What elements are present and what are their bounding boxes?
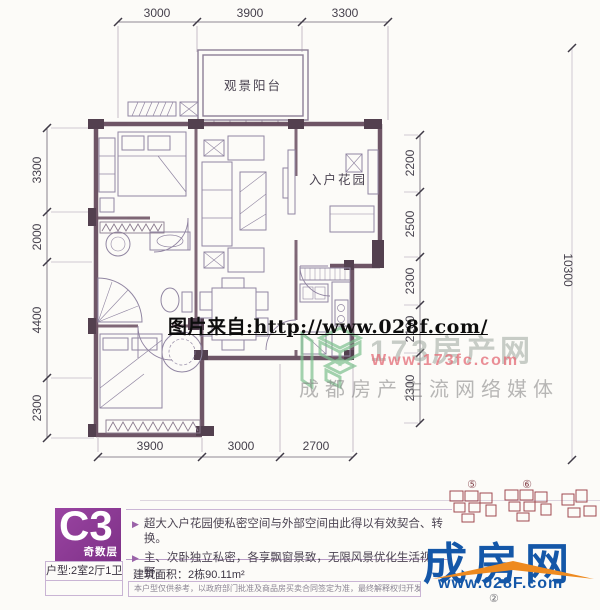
master-bedroom-furniture bbox=[99, 132, 186, 212]
floor-plan-drawing: 3000 3900 3300 3300 2000 4400 2300 2200 … bbox=[0, 0, 600, 500]
dim-right-3: 2300 bbox=[403, 267, 417, 294]
unit-type: 户型:2室2厅1卫 bbox=[45, 561, 123, 581]
entry-garden-label: 入户花园 bbox=[309, 172, 367, 187]
dim-total-height: 10300 bbox=[561, 253, 575, 287]
unit-code-box: C3 奇数层 bbox=[55, 508, 121, 561]
living-room-furniture bbox=[202, 136, 295, 272]
173-tagline-watermark: 成都房产主流网络媒体 bbox=[299, 373, 559, 402]
keyplan-label-5: ⑤ bbox=[467, 479, 477, 491]
dim-top-3: 3300 bbox=[332, 6, 359, 20]
feature-text: 超大入户花园使私密空间与外部空间由此得以有效契合、转换。 bbox=[144, 517, 452, 547]
keyplan-partial-building bbox=[562, 490, 596, 517]
dim-top-1: 3000 bbox=[144, 6, 171, 20]
balcony-label: 观景阳台 bbox=[224, 78, 282, 93]
bullet-arrow-icon: ▶ bbox=[132, 517, 139, 532]
dim-left-4: 2300 bbox=[30, 394, 44, 421]
dim-right-1: 2200 bbox=[403, 149, 417, 176]
site-key-plan: ⑤ ⑥ bbox=[440, 476, 600, 534]
feature-list: ▶ 超大入户花园使私密空间与外部空间由此得以有效契合、转换。 ▶ 主、次卧独立私… bbox=[126, 509, 452, 560]
unit-code: C3 bbox=[59, 502, 113, 550]
173-url-watermark: Www.173fc.com bbox=[371, 352, 519, 370]
keyplan-label-6: ⑥ bbox=[522, 479, 532, 491]
dim-right-2: 2500 bbox=[403, 210, 417, 237]
chengfangwang-url: www.028F.com bbox=[438, 575, 563, 593]
second-bedroom-furniture bbox=[100, 332, 202, 408]
dim-bottom-1: 3900 bbox=[137, 439, 164, 453]
bathroom-fixtures bbox=[98, 232, 192, 322]
dim-left-1: 3300 bbox=[30, 156, 44, 183]
disclaimer: 本户型仅供参考，以政府部门批准及商品房买卖合同签定为准，最终解释权归开发商所有 bbox=[128, 581, 421, 597]
dim-bottom-2: 3000 bbox=[228, 439, 255, 453]
entry-garden-fixtures bbox=[330, 150, 378, 232]
dim-bottom-3: 2700 bbox=[303, 439, 330, 453]
empty-table-row bbox=[45, 581, 123, 596]
scanned-floorplan-page: 3000 3900 3300 3300 2000 4400 2300 2200 … bbox=[0, 0, 600, 610]
bullet-arrow-icon: ▶ bbox=[132, 551, 139, 566]
feature-item: ▶ 超大入户花园使私密空间与外部空间由此得以有效契合、转换。 bbox=[132, 517, 452, 547]
logo-badge-number: ② bbox=[489, 592, 499, 605]
dim-left-2: 2000 bbox=[30, 223, 44, 250]
dim-top-2: 3900 bbox=[237, 6, 264, 20]
built-area: 建筑面积：2栋90.11m² bbox=[133, 566, 245, 582]
dim-left-3: 4400 bbox=[30, 306, 44, 333]
balcony-fixtures bbox=[128, 102, 198, 116]
floor-note: 奇数层 bbox=[84, 544, 119, 559]
